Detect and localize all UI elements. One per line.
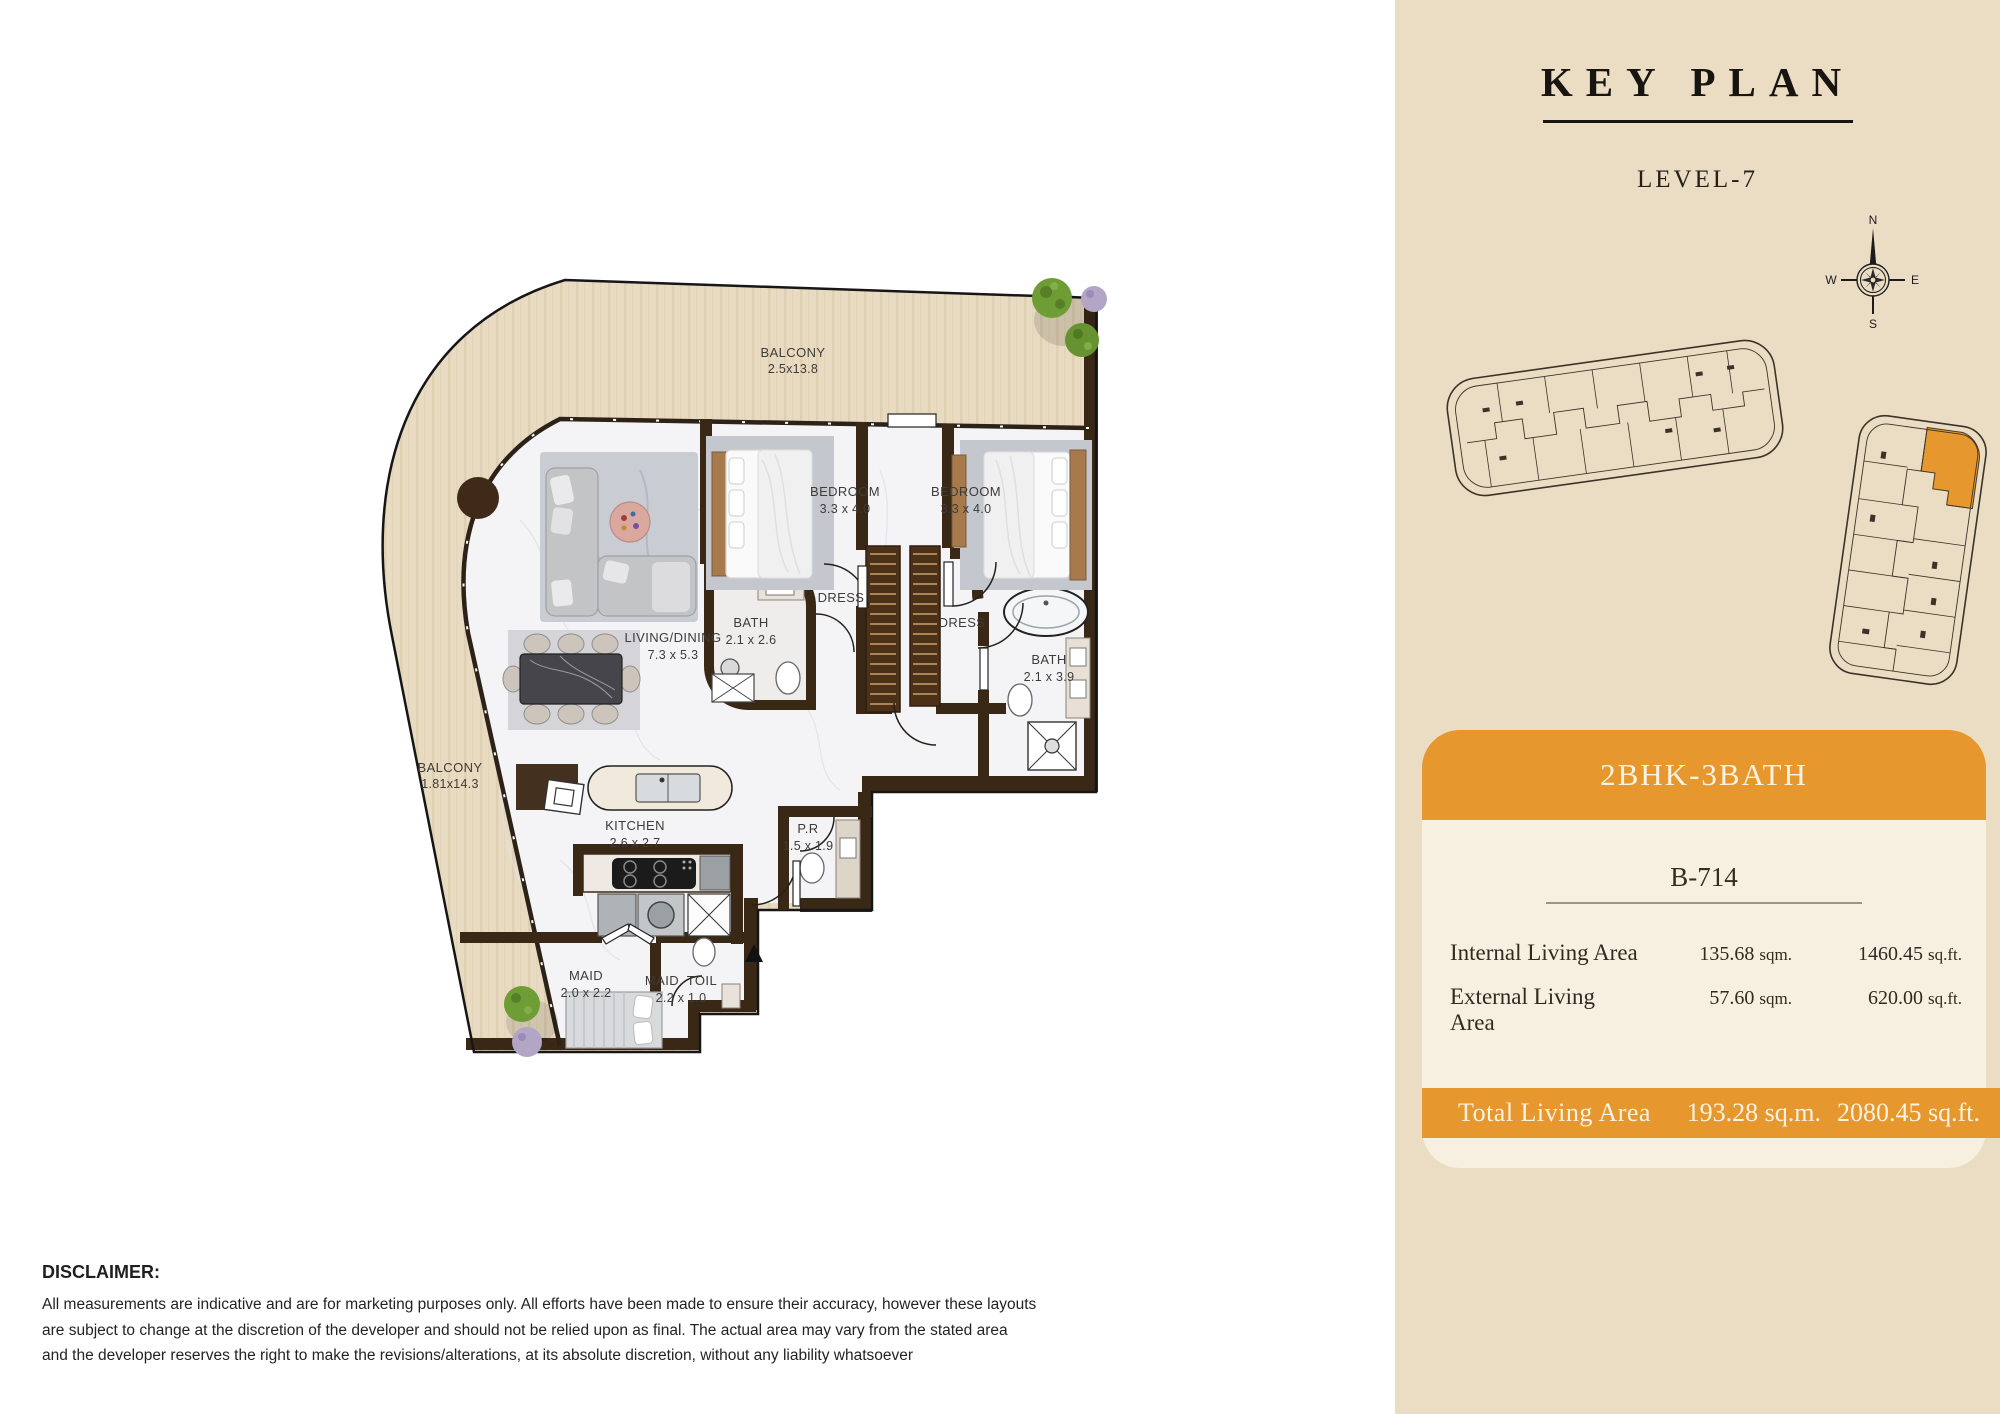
disclaimer-line: and the developer reserves the right to … (42, 1343, 1102, 1369)
svg-text:N: N (1869, 213, 1878, 227)
coffee-table (610, 502, 650, 542)
svg-text:2.5x13.8: 2.5x13.8 (768, 362, 818, 376)
area-table: Internal Living Area 135.68 sqm. 1460.45… (1450, 940, 1962, 1036)
disclaimer-line: All measurements are indicative and are … (42, 1292, 1102, 1318)
svg-text:DRESS: DRESS (818, 590, 865, 605)
svg-text:3.3 x 4.0: 3.3 x 4.0 (820, 502, 871, 516)
svg-text:BALCONY: BALCONY (761, 345, 826, 360)
svg-text:2.1 x 3.9: 2.1 x 3.9 (1024, 670, 1075, 684)
key-plan-title: KEY PLAN (1395, 58, 2000, 106)
total-area-values: 193.28 sq.m.2080.45 sq.ft. (1687, 1098, 2000, 1128)
svg-text:2.6 x 2.7: 2.6 x 2.7 (610, 836, 661, 850)
svg-text:1.5 x 1.9: 1.5 x 1.9 (783, 839, 834, 853)
svg-text:BEDROOM: BEDROOM (931, 484, 1001, 499)
svg-text:KITCHEN: KITCHEN (605, 818, 665, 833)
key-plan-title-underline (1543, 120, 1853, 123)
internal-area-sqft: 1460.45 sq.ft. (1792, 943, 1962, 966)
svg-text:MAID: MAID (569, 968, 603, 983)
svg-text:2.2 x 1.0: 2.2 x 1.0 (656, 991, 707, 1005)
svg-text:BATH: BATH (733, 615, 768, 630)
total-area-band: Total Living Area 193.28 sq.m.2080.45 sq… (1422, 1088, 2000, 1138)
external-area-sqft: 620.00 sq.ft. (1792, 987, 1962, 1010)
key-plan-building-large (1443, 337, 1786, 500)
svg-text:2.0 x 2.2: 2.0 x 2.2 (561, 986, 612, 1000)
key-plan-level: LEVEL-7 (1395, 166, 2000, 194)
internal-area-sqm: 135.68 sqm. (1644, 943, 1792, 966)
svg-text:BATH: BATH (1031, 652, 1066, 667)
svg-text:MAID. TOIL: MAID. TOIL (645, 973, 717, 988)
unit-type-header: 2BHK-3BATH (1422, 730, 1986, 820)
external-area-sqm: 57.60 sqm. (1644, 987, 1792, 1010)
svg-text:DRESS: DRESS (939, 615, 986, 630)
disclaimer-line: are subject to change at the discretion … (42, 1318, 1102, 1344)
disclaimer: DISCLAIMER: All measurements are indicat… (42, 1262, 1102, 1369)
svg-text:W: W (1825, 273, 1837, 287)
floor-plan: BALCONY 2.5x13.8 BEDROOM 3.3 x 4.0 BEDRO… (280, 210, 1120, 1080)
svg-text:LIVING/DINING: LIVING/DINING (625, 630, 722, 645)
internal-area-label: Internal Living Area (1450, 940, 1644, 966)
unit-number-underline (1546, 902, 1862, 904)
svg-text:P.R: P.R (797, 821, 818, 836)
bedroom-1 (706, 436, 834, 590)
unit-number: B-714 (1422, 862, 1986, 893)
svg-text:1.81x14.3: 1.81x14.3 (421, 777, 479, 791)
key-plan-buildings (1400, 320, 2000, 720)
disclaimer-title: DISCLAIMER: (42, 1262, 1102, 1283)
total-area-label: Total Living Area (1422, 1098, 1651, 1128)
svg-text:BEDROOM: BEDROOM (810, 484, 880, 499)
svg-text:BALCONY: BALCONY (418, 760, 483, 775)
svg-text:3.3 x 4.0: 3.3 x 4.0 (941, 502, 992, 516)
dining-set (503, 630, 640, 730)
brochure-page: BALCONY 2.5x13.8 BEDROOM 3.3 x 4.0 BEDRO… (0, 0, 2000, 1414)
svg-text:E: E (1911, 273, 1919, 287)
key-plan-building-small (1827, 412, 1990, 687)
svg-text:2.1 x 2.6: 2.1 x 2.6 (726, 633, 777, 647)
external-area-label: External Living Area (1450, 984, 1644, 1036)
balcony-door (888, 414, 936, 427)
highlighted-unit (1917, 427, 1983, 508)
balcony-round-table (457, 477, 499, 519)
svg-text:7.3 x 5.3: 7.3 x 5.3 (648, 648, 699, 662)
